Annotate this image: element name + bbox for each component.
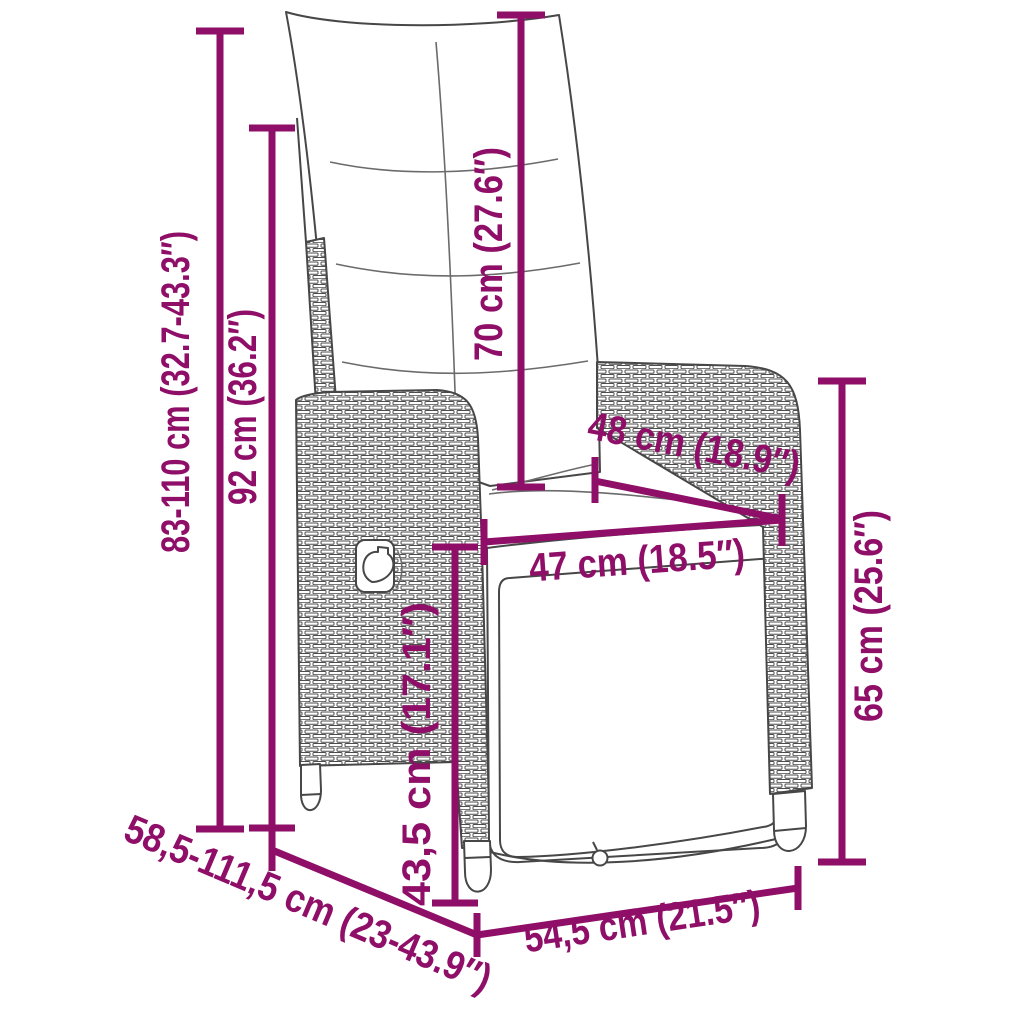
under-seat-knob: [593, 851, 608, 866]
dim-label-overall-height: 83-110 cm (32.7-43.3″): [154, 231, 198, 553]
rear-left-leg: [301, 764, 321, 810]
dim-label-backrest-height: 92 cm (36.2″): [221, 309, 265, 505]
front-left-leg: [464, 841, 491, 892]
product-dimension-diagram: 83-110 cm (32.7-43.3″) 92 cm (36.2″) 70 …: [0, 0, 1024, 1024]
front-left-leg-seam: [465, 857, 490, 858]
dim-label-armrest-height: 65 cm (25.6″): [847, 510, 891, 722]
chair-dimension-drawing: 83-110 cm (32.7-43.3″) 92 cm (36.2″) 70 …: [0, 0, 1024, 1024]
dim-label-seat-height: 43,5 cm (17.1″): [395, 602, 439, 906]
left-side-panel: [296, 390, 490, 848]
dim-label-back-cushion-height: 70 cm (27.6″): [467, 147, 511, 361]
dim-label-base-depth: 54,5 cm (21.5″): [521, 883, 763, 962]
seat-cushion-front: [499, 559, 779, 857]
rear-left-leg-seam: [301, 794, 321, 795]
front-right-leg: [773, 791, 806, 851]
